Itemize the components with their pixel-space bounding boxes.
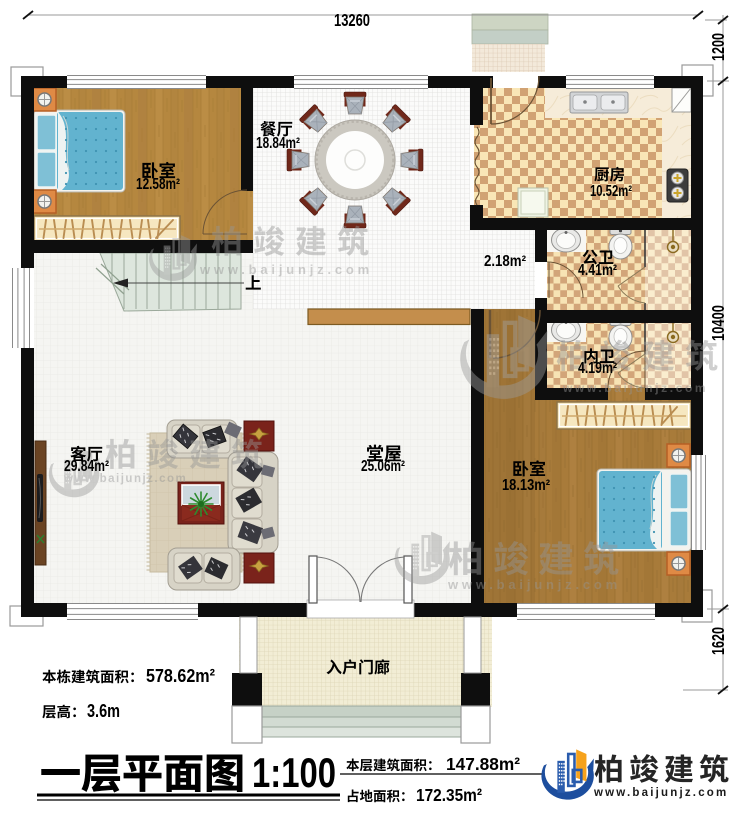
svg-text:3.6m: 3.6m: [87, 700, 120, 721]
svg-text:18.13m²: 18.13m²: [502, 477, 550, 494]
svg-text:www.baijunjz.com: www.baijunjz.com: [447, 577, 621, 592]
svg-text:www.baijunjz.com: www.baijunjz.com: [562, 381, 708, 395]
svg-text:12.58m²: 12.58m²: [136, 176, 180, 193]
svg-text:www.baijunjz.com: www.baijunjz.com: [593, 787, 728, 799]
svg-text:578.62m²: 578.62m²: [146, 665, 215, 686]
svg-text:172.35m²: 172.35m²: [416, 785, 482, 805]
svg-text:10400: 10400: [708, 305, 728, 341]
svg-text:www.baijunjz.com: www.baijunjz.com: [199, 262, 373, 277]
svg-text:10.52m²: 10.52m²: [590, 183, 632, 200]
svg-text:29.84m²: 29.84m²: [64, 458, 109, 475]
svg-text:25.06m²: 25.06m²: [361, 458, 405, 475]
svg-text:147.88m²: 147.88m²: [446, 754, 520, 774]
svg-text:2.18m²: 2.18m²: [484, 253, 526, 270]
svg-text:18.84m²: 18.84m²: [256, 135, 300, 152]
svg-text:1:100: 1:100: [252, 749, 336, 796]
svg-text:1620: 1620: [708, 627, 728, 655]
svg-text:1200: 1200: [708, 33, 728, 61]
svg-text:4.19m²: 4.19m²: [578, 360, 617, 377]
svg-text:13260: 13260: [334, 10, 370, 30]
svg-text:4.41m²: 4.41m²: [578, 262, 617, 279]
